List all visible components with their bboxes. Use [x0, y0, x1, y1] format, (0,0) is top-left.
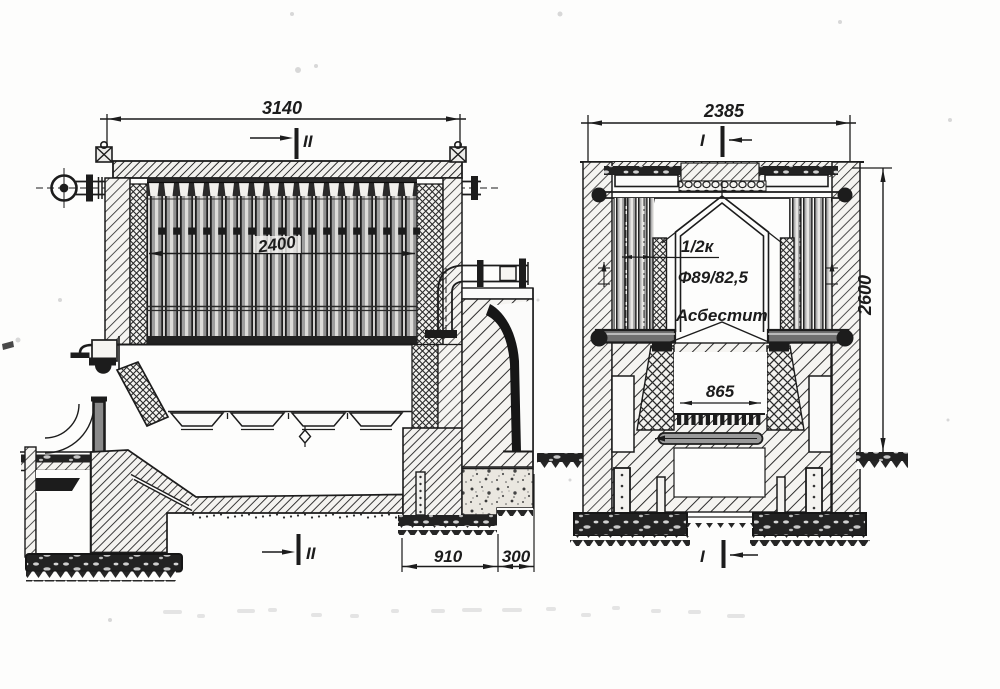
svg-text:300: 300 — [502, 547, 531, 566]
svg-text:3140: 3140 — [262, 98, 302, 118]
svg-text:II: II — [306, 544, 317, 563]
svg-text:2600: 2600 — [855, 275, 875, 316]
svg-text:910: 910 — [434, 547, 463, 566]
svg-text:1/2к: 1/2к — [681, 237, 715, 256]
svg-text:Ф89/82,5: Ф89/82,5 — [678, 268, 749, 287]
svg-text:II: II — [303, 132, 314, 151]
svg-text:2385: 2385 — [703, 101, 745, 121]
svg-text:865: 865 — [706, 382, 735, 401]
